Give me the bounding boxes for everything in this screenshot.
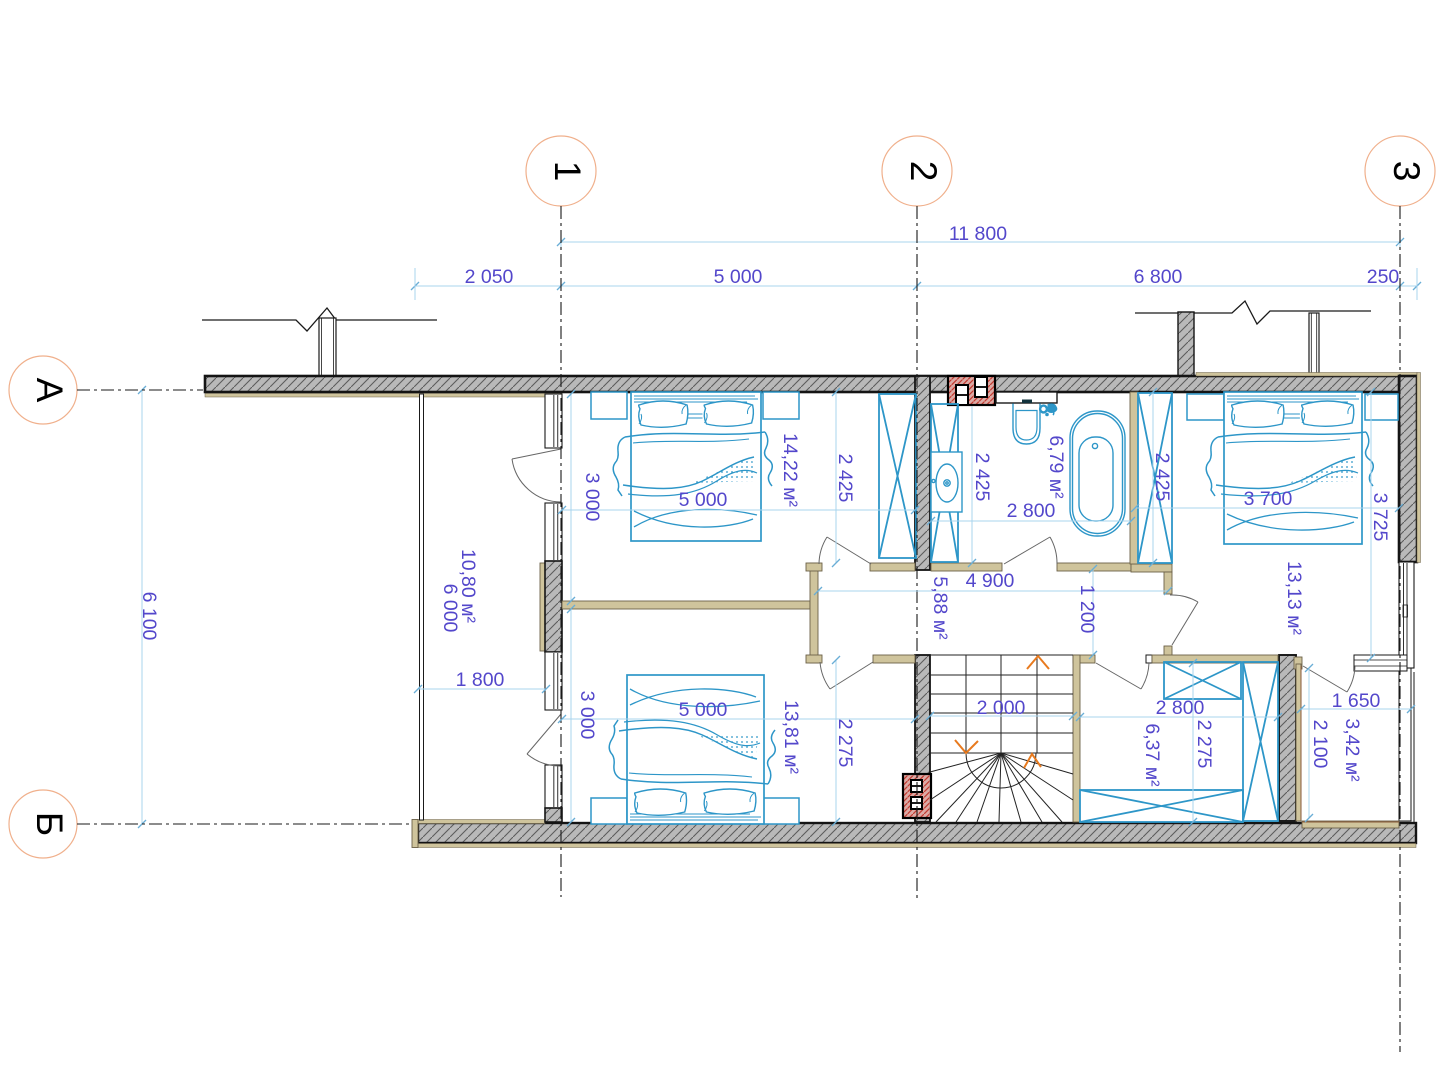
svg-text:14,22 м²: 14,22 м² [779, 433, 801, 508]
svg-text:3 000: 3 000 [576, 691, 598, 740]
svg-text:2 275: 2 275 [834, 719, 856, 768]
svg-text:2 275: 2 275 [1193, 720, 1215, 769]
svg-text:5 000: 5 000 [714, 266, 763, 288]
svg-text:250: 250 [1367, 266, 1400, 288]
svg-text:5,88 м²: 5,88 м² [929, 576, 951, 640]
svg-text:1 800: 1 800 [456, 669, 505, 691]
svg-text:3: 3 [1386, 161, 1427, 182]
svg-text:2: 2 [903, 161, 944, 182]
svg-text:6 000: 6 000 [439, 584, 461, 633]
svg-text:2 425: 2 425 [971, 453, 993, 502]
svg-text:1 650: 1 650 [1332, 690, 1381, 712]
svg-text:2 800: 2 800 [1007, 500, 1056, 522]
svg-text:2 000: 2 000 [977, 697, 1026, 719]
svg-text:2 050: 2 050 [465, 266, 514, 288]
svg-text:1 200: 1 200 [1076, 585, 1098, 634]
svg-text:2 425: 2 425 [834, 454, 856, 503]
svg-text:6 100: 6 100 [138, 592, 160, 641]
svg-text:3 000: 3 000 [581, 473, 603, 522]
svg-text:13,13 м²: 13,13 м² [1283, 561, 1305, 636]
svg-text:11 800: 11 800 [949, 223, 1007, 245]
svg-text:3 725: 3 725 [1369, 493, 1391, 542]
svg-text:5 000: 5 000 [679, 699, 728, 721]
svg-text:4 900: 4 900 [966, 570, 1015, 592]
svg-text:2 425: 2 425 [1151, 453, 1173, 502]
svg-text:6 800: 6 800 [1134, 266, 1183, 288]
svg-text:5 000: 5 000 [679, 489, 728, 511]
svg-text:2 800: 2 800 [1156, 697, 1205, 719]
svg-text:6,37 м²: 6,37 м² [1141, 723, 1163, 787]
svg-text:2 100: 2 100 [1309, 720, 1331, 769]
svg-text:Б: Б [29, 812, 70, 836]
svg-text:13,81 м²: 13,81 м² [780, 700, 802, 775]
svg-text:3 700: 3 700 [1244, 488, 1293, 510]
svg-text:6,79 м²: 6,79 м² [1045, 435, 1067, 499]
svg-text:А: А [29, 378, 70, 403]
svg-text:1: 1 [547, 161, 588, 182]
svg-text:3,42 м²: 3,42 м² [1341, 718, 1363, 782]
